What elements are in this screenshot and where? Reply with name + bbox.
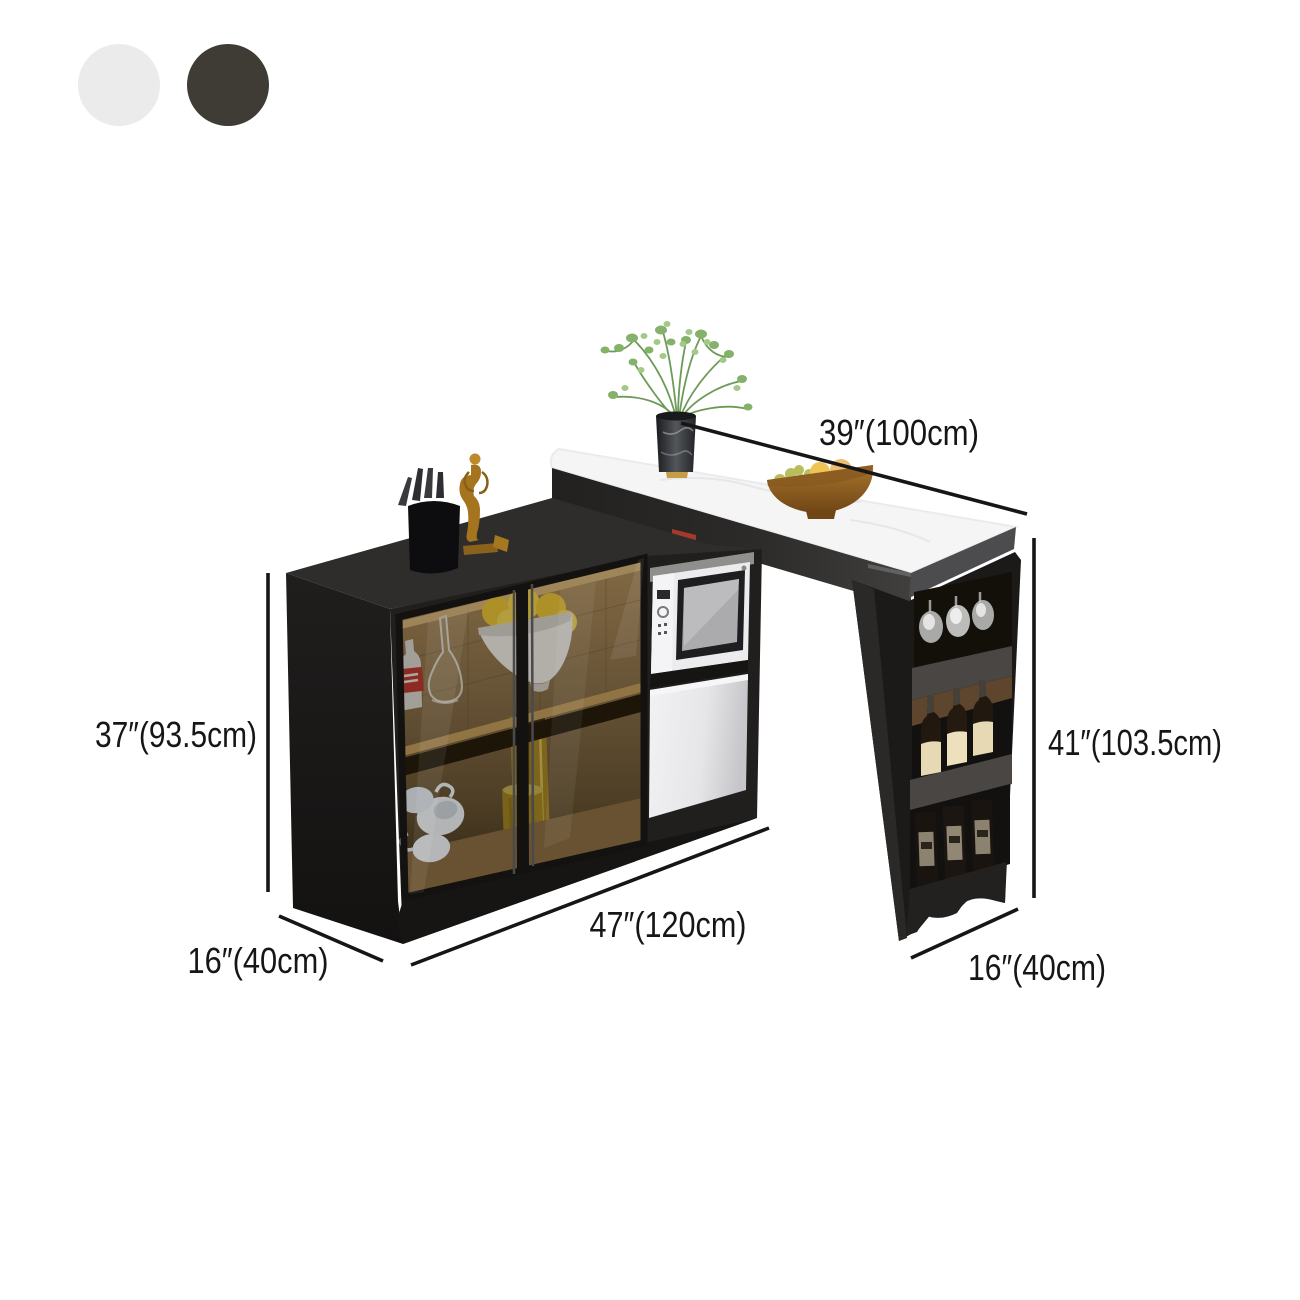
svg-text:47″(120cm): 47″(120cm) [590, 904, 747, 945]
svg-text:16″(40cm): 16″(40cm) [188, 940, 329, 981]
svg-text:16″(40cm): 16″(40cm) [968, 947, 1106, 988]
svg-text:41″(103.5cm): 41″(103.5cm) [1048, 722, 1222, 763]
svg-text:37″(93.5cm): 37″(93.5cm) [95, 714, 257, 755]
svg-text:39″(100cm): 39″(100cm) [819, 412, 979, 453]
